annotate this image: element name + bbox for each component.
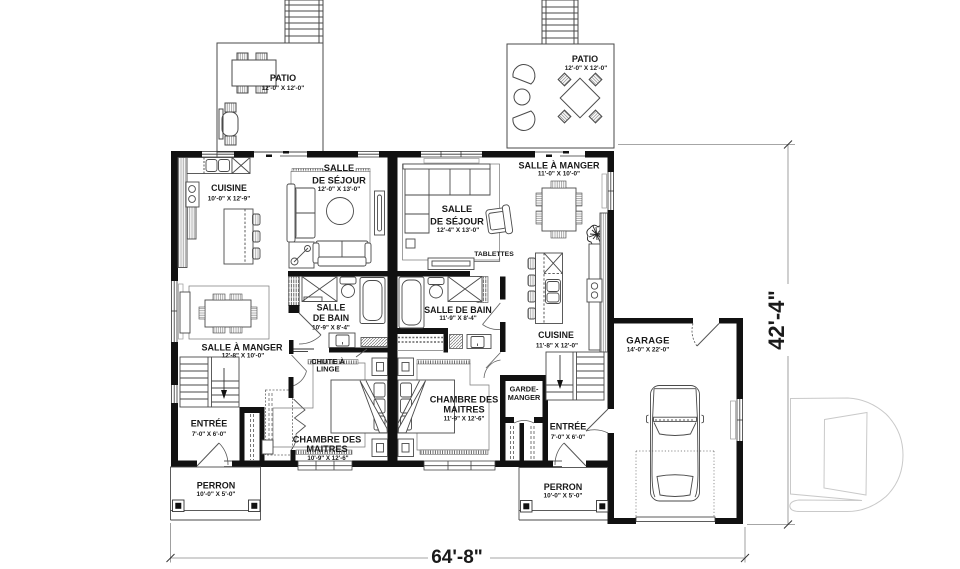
svg-text:10'-0" X 5'-0": 10'-0" X 5'-0" — [544, 493, 583, 500]
svg-text:ENTRÉE: ENTRÉE — [191, 419, 228, 429]
svg-text:MAITRES: MAITRES — [443, 405, 484, 415]
svg-text:DE BAIN: DE BAIN — [313, 313, 349, 323]
svg-text:PERRON: PERRON — [197, 481, 236, 491]
svg-text:SALLE À MANGER: SALLE À MANGER — [202, 343, 284, 353]
svg-text:64'-8": 64'-8" — [431, 547, 483, 568]
svg-text:CHAMBRE DES: CHAMBRE DES — [430, 395, 498, 405]
svg-text:12'-4" X 13'-0": 12'-4" X 13'-0" — [437, 227, 480, 234]
svg-text:11'-8" X 12'-0": 11'-8" X 12'-0" — [536, 343, 578, 350]
svg-text:DE SÉJOUR: DE SÉJOUR — [430, 217, 484, 227]
svg-text:7'-0" X 6'-0": 7'-0" X 6'-0" — [551, 434, 585, 441]
svg-text:TABLETTES: TABLETTES — [474, 251, 514, 258]
svg-text:CUISINE: CUISINE — [211, 183, 247, 193]
svg-text:10'-9" X 8'-4": 10'-9" X 8'-4" — [312, 325, 350, 332]
svg-text:DE SÉJOUR: DE SÉJOUR — [312, 176, 366, 186]
svg-text:MANGER: MANGER — [508, 393, 541, 402]
svg-text:SALLE À MANGER: SALLE À MANGER — [519, 161, 601, 171]
svg-text:10'-0" X 12'-9": 10'-0" X 12'-9" — [208, 196, 251, 203]
svg-text:GARAGE: GARAGE — [626, 336, 670, 347]
svg-text:11'-0" X 10'-0": 11'-0" X 10'-0" — [538, 171, 580, 178]
svg-text:PATIO: PATIO — [270, 73, 296, 83]
svg-text:42'-4": 42'-4" — [764, 290, 789, 350]
svg-text:11'-9" X 12'-6": 11'-9" X 12'-6" — [444, 415, 485, 422]
svg-text:SALLE: SALLE — [442, 204, 472, 214]
svg-text:12'-0" X 13'-0": 12'-0" X 13'-0" — [318, 186, 361, 193]
svg-text:10'-9" X 12'-6": 10'-9" X 12'-6" — [307, 455, 348, 462]
svg-text:PERRON: PERRON — [544, 482, 583, 492]
svg-text:CHAMBRE DES: CHAMBRE DES — [293, 435, 361, 445]
svg-text:7'-0" X 6'-0": 7'-0" X 6'-0" — [192, 431, 226, 438]
svg-text:12'-8" X 10'-0": 12'-8" X 10'-0" — [222, 353, 265, 360]
svg-text:CUISINE: CUISINE — [538, 330, 574, 340]
svg-text:12'-0" X 12'-0": 12'-0" X 12'-0" — [262, 85, 305, 92]
svg-text:14'-0" X 22'-0": 14'-0" X 22'-0" — [627, 347, 670, 354]
svg-text:10'-0" X 5'-0": 10'-0" X 5'-0" — [197, 491, 236, 498]
svg-text:12'-0" X 12'-0": 12'-0" X 12'-0" — [565, 65, 608, 72]
svg-text:11'-9" X 8'-4": 11'-9" X 8'-4" — [439, 315, 476, 322]
svg-text:MAITRES: MAITRES — [306, 444, 347, 454]
svg-text:SALLE: SALLE — [317, 303, 346, 313]
svg-text:SALLE: SALLE — [324, 163, 354, 173]
svg-text:SALLE DE BAIN: SALLE DE BAIN — [424, 305, 491, 315]
svg-text:ENTRÉE: ENTRÉE — [550, 422, 587, 432]
svg-text:LINGE: LINGE — [316, 365, 339, 374]
svg-text:PATIO: PATIO — [572, 54, 598, 64]
